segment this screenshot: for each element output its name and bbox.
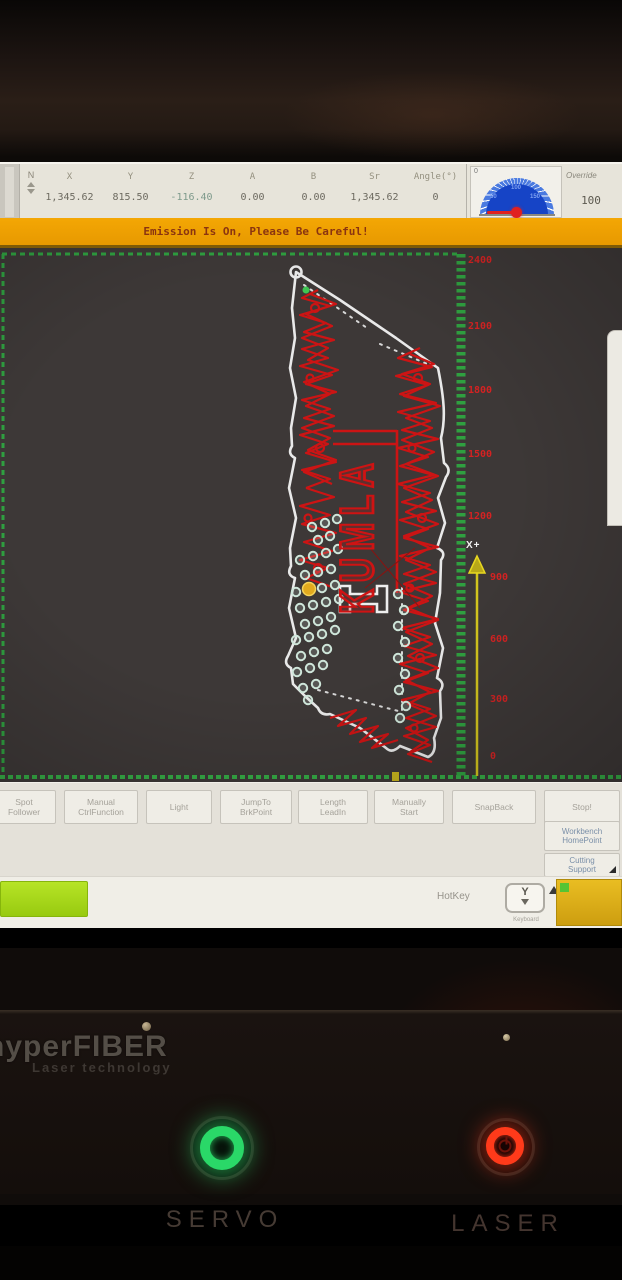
axis-value: -116.40 bbox=[161, 192, 222, 203]
button-label: HomePoint bbox=[545, 836, 619, 845]
machine-front-panel: hyperFIBER Laser technology bbox=[0, 948, 622, 1205]
action-button-8[interactable]: Stop! bbox=[544, 790, 620, 824]
action-button-3[interactable]: Light bbox=[146, 790, 212, 824]
gauge-tick-100: 100 bbox=[511, 185, 521, 191]
button-label: Follower bbox=[0, 807, 55, 817]
axis-x-plus-label: X+ bbox=[466, 540, 481, 551]
override-label: Override bbox=[566, 171, 622, 180]
gauge-tick-50: 50 bbox=[490, 194, 497, 200]
nesting-canvas[interactable]: 2400 2100 1800 1500 1200 900 600 300 0 X… bbox=[0, 248, 622, 782]
keycap-down-arrow-icon bbox=[521, 899, 529, 905]
axis-header: B bbox=[283, 172, 344, 182]
axis-col-angle: Angle(°)0 bbox=[405, 168, 466, 216]
corner-triangle-icon bbox=[609, 866, 616, 873]
hotkey-keycap[interactable]: Y bbox=[505, 883, 545, 913]
left-panel-splitter[interactable] bbox=[0, 164, 20, 220]
action-button-5[interactable]: LengthLeadIn bbox=[298, 790, 368, 824]
button-label: SnapBack bbox=[453, 802, 535, 812]
axis-value: 815.50 bbox=[100, 192, 161, 203]
monitor-screen: N X1,345.62 Y815.50 Z-116.40 A0.00 B0.00… bbox=[0, 162, 622, 928]
axis-col-b: B0.00 bbox=[283, 168, 344, 216]
laser-led-ring bbox=[486, 1127, 524, 1165]
axis-col-y: Y815.50 bbox=[100, 168, 161, 216]
button-label: Workbench bbox=[545, 827, 619, 836]
button-label: JumpTo bbox=[221, 797, 291, 807]
axis-value: 0.00 bbox=[222, 192, 283, 203]
photo-letterbox-bottom bbox=[0, 1246, 622, 1280]
axis-col-z: Z-116.40 bbox=[161, 168, 222, 216]
axis-header: Sr bbox=[344, 172, 405, 182]
brand-subtitle: Laser technology bbox=[32, 1060, 172, 1075]
ruler-label: 1800 bbox=[468, 385, 492, 396]
active-pierce-dot bbox=[303, 583, 316, 596]
ruler-label: 0 bbox=[490, 751, 496, 762]
gauge-zero-label: 0 bbox=[474, 168, 478, 175]
button-label: Manual bbox=[65, 797, 137, 807]
start-point-dot bbox=[303, 287, 310, 294]
collapsed-side-panel[interactable] bbox=[607, 330, 622, 526]
panel-screw bbox=[503, 1034, 510, 1041]
button-label: Cutting bbox=[545, 856, 619, 865]
button-label: Start bbox=[375, 807, 443, 817]
gauge-needle-hub bbox=[511, 207, 522, 218]
axis-value: 1,345.62 bbox=[39, 192, 100, 203]
button-label: Length bbox=[299, 797, 367, 807]
axis-col-x: X1,345.62 bbox=[39, 168, 100, 216]
ruler-label: 300 bbox=[490, 694, 508, 705]
ready-indicator-button[interactable] bbox=[0, 881, 88, 917]
axis-arrow bbox=[469, 556, 485, 776]
axis-col-sr: Sr1,345.62 bbox=[344, 168, 405, 216]
action-button-4[interactable]: JumpToBrkPoint bbox=[220, 790, 292, 824]
speed-gauge-panel: 0 50 100 150 bbox=[470, 166, 562, 218]
power-symbol-icon bbox=[499, 1140, 512, 1153]
axis-readout-table: X1,345.62 Y815.50 Z-116.40 A0.00 B0.00 S… bbox=[39, 168, 466, 216]
splitter-groove bbox=[5, 167, 14, 217]
ruler-label: 600 bbox=[490, 634, 508, 645]
coordinate-toolbar: N X1,345.62 Y815.50 Z-116.40 A0.00 B0.00… bbox=[0, 162, 622, 218]
side-button-1[interactable]: WorkbenchHomePoint bbox=[544, 821, 620, 851]
axis-header: X bbox=[39, 172, 100, 182]
action-button-6[interactable]: ManuallyStart bbox=[374, 790, 444, 824]
button-label: CtrlFunction bbox=[65, 807, 137, 817]
action-button-7[interactable]: SnapBack bbox=[452, 790, 536, 824]
toolpath-drawing bbox=[0, 248, 622, 782]
button-label: LeadIn bbox=[299, 807, 367, 817]
ruler-label: 2400 bbox=[468, 255, 492, 266]
ruler-label: 1200 bbox=[468, 511, 492, 522]
nested-part-text: KUMLA bbox=[331, 428, 395, 642]
ruler-label: 1500 bbox=[468, 449, 492, 460]
axis-header: Angle(°) bbox=[405, 172, 466, 182]
servo-power-button[interactable] bbox=[190, 1116, 254, 1180]
spinner-up-icon[interactable] bbox=[27, 182, 35, 187]
spinner-down-icon[interactable] bbox=[27, 189, 35, 194]
room-background-top bbox=[0, 0, 622, 162]
axis-value: 0.00 bbox=[283, 192, 344, 203]
keycap-letter: Y bbox=[507, 885, 543, 899]
servo-label: SERVO bbox=[140, 1206, 310, 1234]
axis-index-spinner[interactable]: N bbox=[24, 170, 38, 214]
action-button-2[interactable]: ManualCtrlFunction bbox=[64, 790, 138, 824]
axis-value: 0 bbox=[405, 192, 466, 203]
laser-label: LASER bbox=[428, 1210, 588, 1238]
mode-button[interactable] bbox=[556, 879, 622, 926]
ambient-glow bbox=[282, 70, 582, 160]
servo-led-ring bbox=[200, 1126, 244, 1170]
warning-text: Emission Is On, Please Be Careful! bbox=[0, 225, 512, 238]
button-label: BrkPoint bbox=[221, 807, 291, 817]
axis-header: Z bbox=[161, 172, 222, 182]
button-label: Support bbox=[545, 865, 619, 874]
action-button-1[interactable]: SpotFollower bbox=[0, 790, 56, 824]
override-value: 100 bbox=[566, 194, 616, 207]
button-label: Spot bbox=[0, 797, 55, 807]
hotkey-label: HotKey bbox=[437, 891, 470, 902]
action-bar: SpotFollower ManualCtrlFunction Light Ju… bbox=[0, 782, 622, 876]
keycap-hint: Keyboard bbox=[494, 917, 558, 923]
ruler-label: 900 bbox=[490, 572, 508, 583]
laser-power-button[interactable] bbox=[477, 1118, 535, 1176]
side-button-2[interactable]: CuttingSupport bbox=[544, 853, 620, 877]
axis-value: 1,345.62 bbox=[344, 192, 405, 203]
button-label: Stop! bbox=[545, 802, 619, 812]
gauge-tick-150: 150 bbox=[530, 194, 540, 200]
axis-col-a: A0.00 bbox=[222, 168, 283, 216]
emission-warning-bar: Emission Is On, Please Be Careful! bbox=[0, 218, 622, 248]
toolbar-divider bbox=[466, 164, 467, 220]
ruler-label: 2100 bbox=[468, 321, 492, 332]
button-label: Light bbox=[147, 802, 211, 812]
axis-header: A bbox=[222, 172, 283, 182]
button-label: Manually bbox=[375, 797, 443, 807]
brand-logo: hyperFIBER bbox=[0, 1030, 168, 1064]
axis-index-label: N bbox=[28, 170, 35, 180]
axis-header: Y bbox=[100, 172, 161, 182]
photo-of-laser-control-screen: N X1,345.62 Y815.50 Z-116.40 A0.00 B0.00… bbox=[0, 0, 622, 1280]
status-bar: HotKey Y Keyboard bbox=[0, 876, 622, 928]
mode-indicator-square bbox=[560, 883, 569, 892]
